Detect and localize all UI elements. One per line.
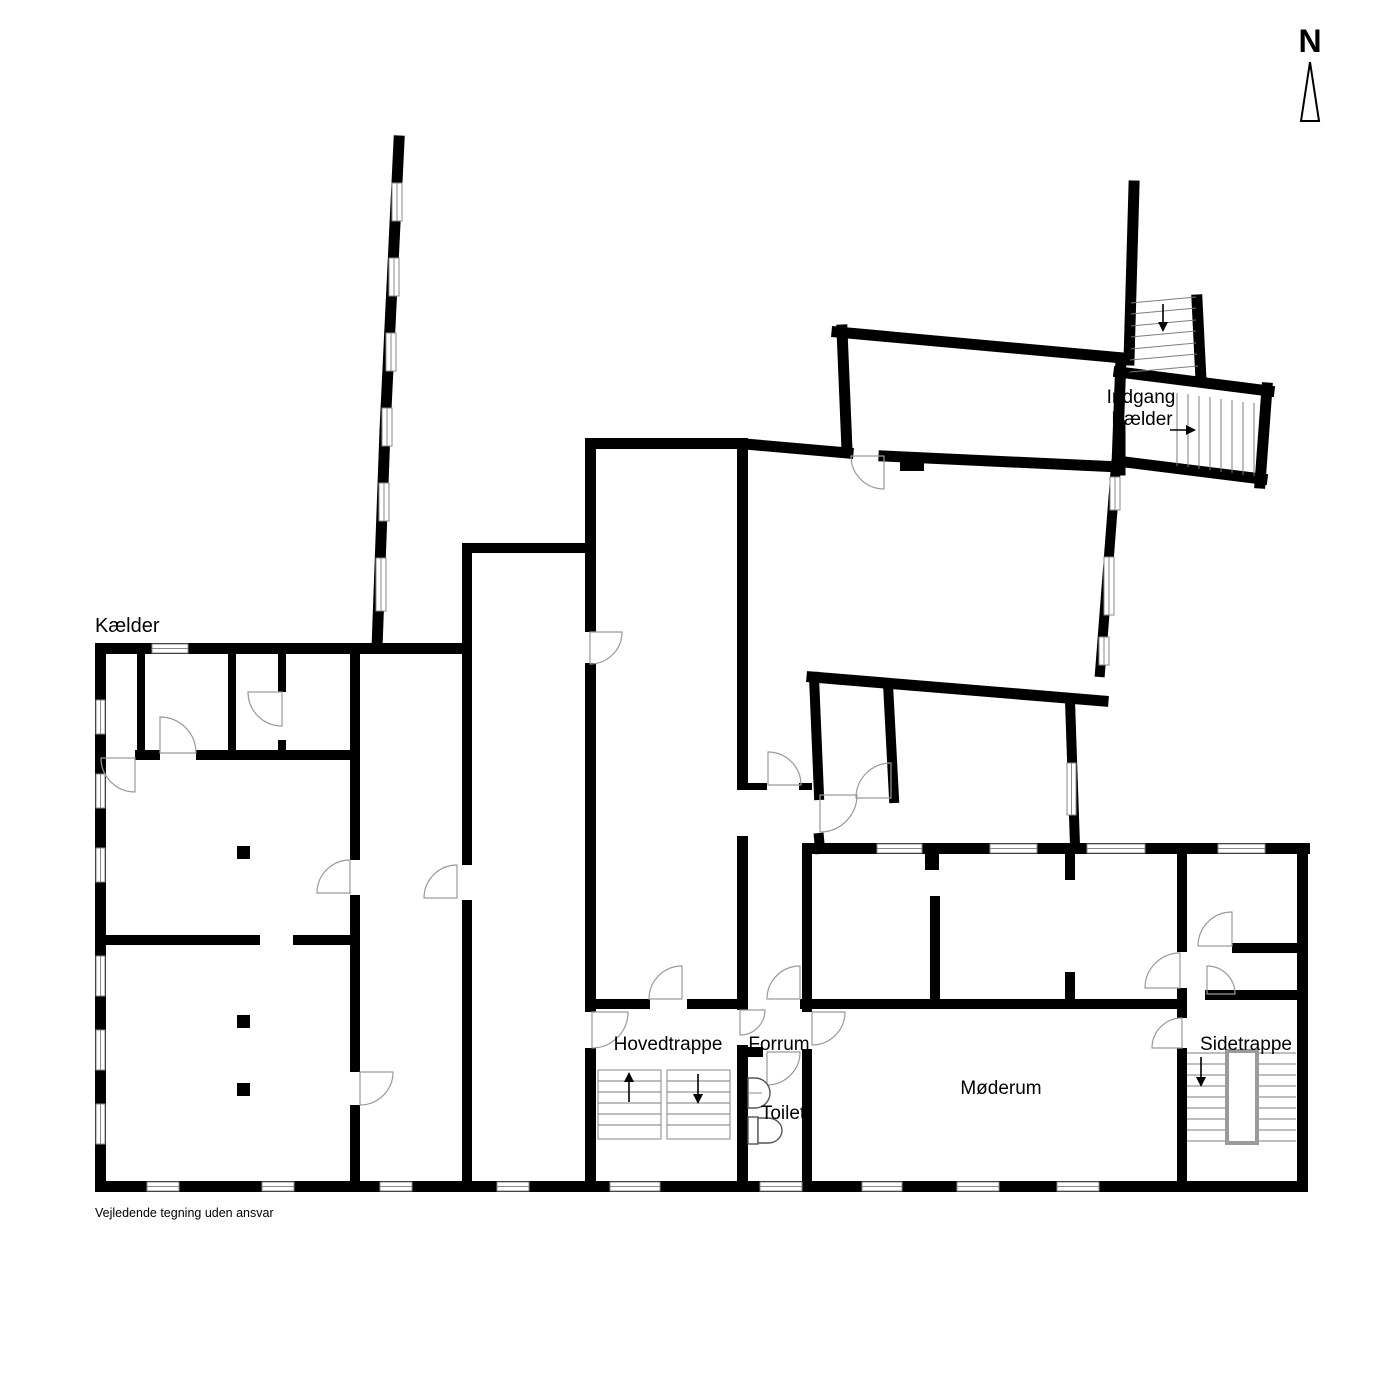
wall (802, 848, 812, 1012)
room-label-forrum: Forrum (748, 1034, 809, 1055)
entrance-label-line1: Indgang (1107, 387, 1176, 408)
pillar (900, 458, 924, 471)
window (380, 1182, 412, 1191)
wall (1177, 988, 1187, 1018)
door-arc (590, 632, 622, 664)
compass-needle-icon (1301, 62, 1319, 121)
compass-north-label: N (1298, 23, 1321, 59)
wall (585, 1048, 596, 1192)
wall (812, 677, 1103, 701)
wall (350, 1105, 360, 1181)
wall (1260, 388, 1267, 483)
window (96, 1030, 105, 1070)
door-arc (768, 752, 801, 785)
wall (1197, 300, 1201, 380)
window (1087, 844, 1145, 853)
stairs-right-arrow (1170, 425, 1196, 435)
wall (930, 896, 940, 1002)
stairs-tower (1130, 297, 1198, 372)
window (382, 408, 392, 446)
wall (585, 663, 596, 1012)
door-arc (1152, 1018, 1182, 1048)
room-label-sidetrappe: Sidetrappe (1200, 1034, 1292, 1055)
wall (293, 935, 355, 945)
window (386, 333, 396, 371)
wall (812, 999, 1177, 1009)
stairs-down-arrow (1158, 304, 1168, 332)
window (1067, 763, 1076, 815)
door-arc (360, 1072, 393, 1105)
wall (737, 836, 748, 1010)
wall (95, 750, 101, 760)
wall (462, 543, 590, 553)
wall (1232, 943, 1300, 953)
floor-plan-drawing: N Kælder Indgang Kælder Hovedtrappe Forr… (0, 0, 1400, 1400)
wall (925, 854, 939, 870)
disclaimer-text: Vejledende tegning uden ansvar (95, 1206, 274, 1220)
door-arc (1198, 912, 1232, 946)
door-arc (248, 692, 282, 726)
wall (737, 449, 748, 789)
window (389, 258, 399, 296)
door-arc (649, 966, 682, 999)
wall (196, 750, 350, 760)
window (1104, 557, 1114, 615)
wall (585, 438, 748, 449)
window (152, 644, 188, 653)
window (1218, 844, 1265, 853)
door-arc (1207, 966, 1235, 994)
room-label-toilet: Toilet (761, 1103, 806, 1124)
pillar (237, 846, 250, 859)
window (1099, 637, 1109, 665)
window (392, 183, 402, 221)
window (957, 1182, 999, 1191)
entrance-label-line2: Kælder (1111, 409, 1173, 430)
wall (837, 332, 1123, 358)
wall (1297, 843, 1308, 1192)
door-arc (160, 717, 196, 753)
stairs-entrance (1170, 393, 1254, 476)
stair-landing (1227, 1051, 1257, 1143)
window (497, 1182, 529, 1191)
window (96, 700, 105, 734)
door-arc (820, 795, 857, 832)
window (610, 1182, 660, 1191)
wall (228, 648, 236, 755)
stairs-hovedtrappe (598, 1070, 730, 1139)
window (990, 844, 1037, 853)
window (147, 1182, 179, 1191)
compass: N (1298, 23, 1321, 121)
wall (350, 643, 360, 860)
stairs-sidetrappe (1187, 1051, 1296, 1143)
floor-plan-page: N Kælder Indgang Kælder Hovedtrappe Forr… (0, 0, 1400, 1400)
window (262, 1182, 294, 1191)
pillar (237, 1083, 250, 1096)
window (877, 844, 922, 853)
door-arc (812, 1012, 845, 1045)
window (96, 774, 105, 808)
window (96, 848, 105, 882)
window (862, 1182, 902, 1191)
wall (95, 935, 260, 945)
wall (1177, 1048, 1187, 1192)
window (96, 1104, 105, 1144)
window (376, 558, 386, 611)
wall (585, 999, 650, 1009)
door-arc (1145, 953, 1180, 988)
stairs-down-arrow (1196, 1057, 1206, 1087)
wall (350, 895, 360, 1072)
room-label-moederum: Møderum (960, 1078, 1041, 1099)
wall (1129, 186, 1134, 360)
wall (585, 443, 596, 632)
window (1057, 1182, 1099, 1191)
door-arc (740, 1010, 765, 1035)
wall (842, 330, 847, 450)
door-arc (424, 865, 457, 898)
window (379, 483, 389, 521)
wall (1065, 848, 1075, 880)
door-arc (101, 758, 135, 792)
wall (1177, 843, 1187, 952)
wall (462, 900, 472, 1192)
wall (137, 648, 145, 755)
wall (814, 677, 819, 795)
wall (1065, 972, 1075, 1002)
wall (462, 543, 472, 865)
room-label-hovedtrappe: Hovedtrappe (614, 1034, 723, 1055)
stairs-up-arrow (624, 1072, 634, 1102)
door-arc (317, 860, 350, 893)
door-arc (767, 966, 800, 999)
wall (1125, 462, 1262, 479)
floor-label: Kælder (95, 615, 160, 637)
window (96, 956, 105, 996)
door-arc (767, 1052, 800, 1085)
wall (135, 750, 160, 760)
wall (737, 1045, 748, 1192)
wall (278, 648, 286, 692)
wall (819, 838, 820, 849)
stairs-down-arrow (693, 1074, 703, 1104)
door-arc (856, 763, 891, 798)
wall (1205, 990, 1300, 1000)
window (760, 1182, 802, 1191)
window (1110, 477, 1120, 510)
wall (687, 999, 740, 1009)
pillar (237, 1015, 250, 1028)
wall (745, 444, 848, 453)
wall (737, 783, 767, 790)
